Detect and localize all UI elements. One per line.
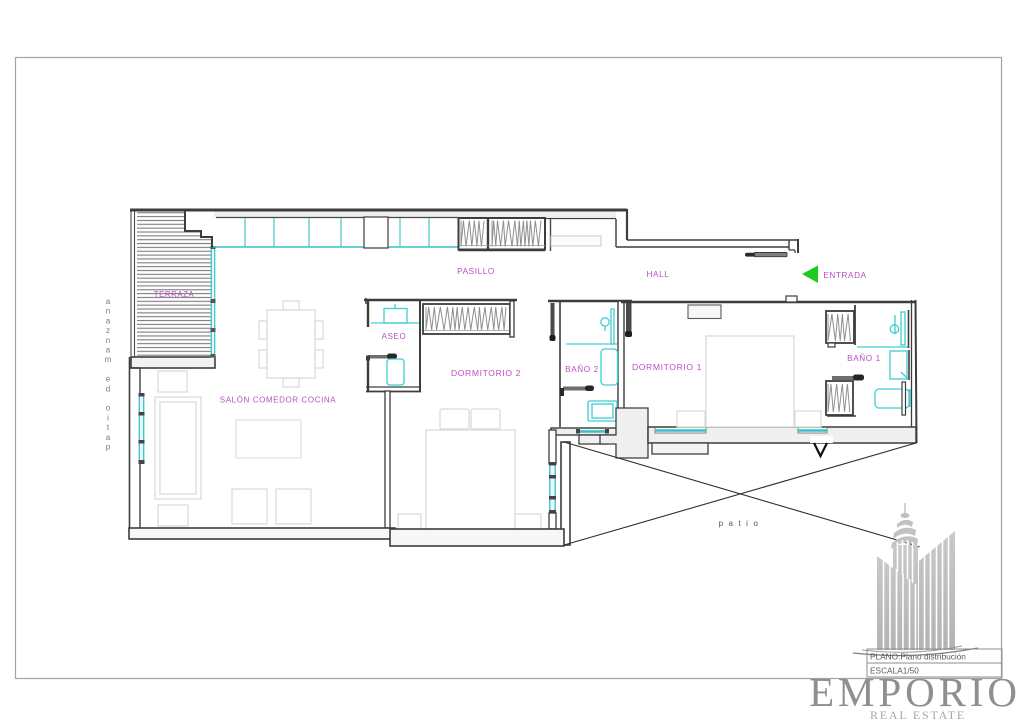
svg-text:ASEO: ASEO — [382, 332, 407, 341]
svg-text:BAÑO 2: BAÑO 2 — [565, 364, 599, 374]
svg-text:DORMITORIO 1: DORMITORIO 1 — [632, 362, 702, 372]
svg-text:ENTRADA: ENTRADA — [823, 271, 866, 280]
svg-text:HALL: HALL — [647, 270, 670, 279]
svg-text:BAÑO 1: BAÑO 1 — [847, 353, 881, 363]
svg-text:SALÓN COMEDOR COCINA: SALÓN COMEDOR COCINA — [220, 396, 337, 405]
svg-text:PLANO:Plano distribución: PLANO:Plano distribución — [870, 652, 966, 662]
svg-text:TERRAZA: TERRAZA — [154, 290, 195, 299]
svg-text:patio: patio — [719, 519, 764, 528]
svg-text:DORMITORIO 2: DORMITORIO 2 — [451, 368, 521, 378]
svg-text:REAL ESTATE: REAL ESTATE — [870, 708, 966, 720]
svg-text:PASILLO: PASILLO — [457, 267, 495, 276]
